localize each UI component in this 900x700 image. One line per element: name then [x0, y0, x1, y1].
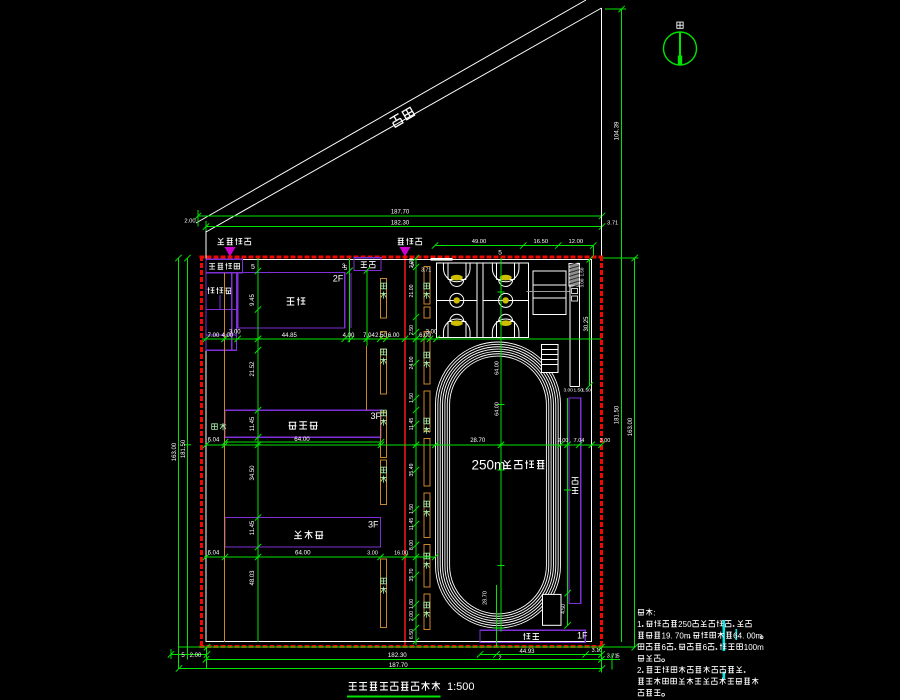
svg-text:4.00: 4.00 [343, 333, 355, 339]
svg-text:34.50: 34.50 [250, 465, 256, 481]
svg-text:49.00: 49.00 [472, 239, 487, 245]
svg-text:2.00: 2.00 [558, 438, 569, 444]
svg-text:64.00: 64.00 [294, 436, 310, 443]
svg-text:44.85: 44.85 [282, 333, 298, 339]
svg-text:187.70: 187.70 [391, 210, 410, 216]
svg-text:6.50: 6.50 [409, 629, 415, 639]
svg-text:187.70: 187.70 [389, 662, 408, 669]
svg-text:3.71: 3.71 [607, 221, 618, 227]
svg-text:7.00: 7.00 [208, 333, 220, 339]
svg-text:1.50: 1.50 [409, 393, 415, 403]
svg-text:6.04: 6.04 [208, 438, 220, 444]
svg-text:30.25: 30.25 [584, 316, 590, 332]
svg-text:9.45: 9.45 [250, 294, 256, 306]
svg-text:1:500: 1:500 [447, 681, 475, 693]
svg-text:.: . [670, 632, 672, 641]
svg-text:6: 6 [703, 643, 708, 652]
svg-text:2: 2 [498, 656, 501, 662]
svg-text:3.00: 3.00 [564, 388, 574, 394]
svg-text:8.00: 8.00 [409, 540, 415, 550]
svg-text:48.03: 48.03 [250, 570, 256, 586]
svg-text:16.00: 16.00 [394, 551, 408, 557]
svg-text:2.50: 2.50 [375, 333, 387, 339]
svg-text:.: . [742, 632, 744, 641]
svg-text:24.00: 24.00 [409, 356, 415, 369]
svg-text:44.93: 44.93 [519, 649, 535, 655]
svg-text:104.39: 104.39 [614, 121, 621, 140]
svg-text:2.00: 2.00 [184, 219, 195, 225]
svg-text:181.50: 181.50 [615, 405, 621, 424]
svg-text:7.04: 7.04 [363, 333, 375, 339]
svg-text:28.70: 28.70 [483, 591, 489, 605]
svg-text:5: 5 [498, 250, 502, 257]
svg-text:3F: 3F [368, 520, 379, 530]
svg-text:6: 6 [661, 643, 666, 652]
svg-text:1.50: 1.50 [580, 267, 585, 276]
svg-text:2.50: 2.50 [409, 325, 415, 335]
svg-text:3.00: 3.00 [600, 438, 611, 444]
svg-text:163.00: 163.00 [628, 417, 634, 436]
svg-text:0: 0 [687, 620, 692, 629]
svg-text:182.30: 182.30 [391, 221, 410, 227]
svg-text:6.04: 6.04 [208, 551, 220, 557]
svg-text:11.45: 11.45 [250, 520, 256, 535]
svg-text:1.50: 1.50 [409, 504, 415, 514]
svg-text:5: 5 [617, 653, 620, 659]
svg-text:2F: 2F [333, 274, 344, 284]
svg-text:3.00: 3.00 [367, 551, 378, 557]
svg-text:1.00: 1.00 [409, 599, 415, 609]
svg-text:4.50: 4.50 [561, 604, 567, 614]
svg-text:64.00: 64.00 [295, 550, 311, 557]
svg-text:28.70: 28.70 [470, 438, 486, 444]
svg-text:12.00: 12.00 [569, 239, 584, 245]
svg-text:3.71: 3.71 [421, 268, 431, 274]
svg-text:182.30: 182.30 [388, 652, 407, 659]
svg-text:35.49: 35.49 [409, 463, 415, 476]
svg-text:6.00: 6.00 [388, 333, 400, 339]
svg-text::: : [653, 609, 655, 618]
svg-text:1.50: 1.50 [582, 388, 592, 394]
svg-text:1F: 1F [577, 631, 588, 641]
svg-text:3.10: 3.10 [592, 648, 603, 654]
svg-text:21.52: 21.52 [250, 361, 256, 377]
svg-text:16.50: 16.50 [534, 239, 549, 245]
svg-text:5: 5 [251, 264, 255, 271]
svg-text:2.00: 2.00 [190, 653, 202, 659]
svg-text:m: m [684, 632, 691, 641]
svg-text:3.00: 3.00 [580, 278, 585, 287]
svg-text:3.00: 3.00 [229, 330, 241, 336]
svg-text:2.00: 2.00 [409, 611, 415, 621]
svg-text:21.00: 21.00 [409, 284, 415, 297]
svg-text:64.00: 64.00 [494, 402, 500, 416]
svg-text:11.45: 11.45 [409, 418, 415, 431]
svg-text:11.45: 11.45 [250, 416, 256, 431]
svg-text:1: 1 [637, 620, 642, 629]
svg-text:35.70: 35.70 [409, 568, 415, 581]
svg-text:2: 2 [637, 666, 642, 675]
svg-text:64.00: 64.00 [494, 361, 500, 375]
svg-text:7.04: 7.04 [574, 438, 585, 444]
svg-text:181.50: 181.50 [181, 439, 187, 458]
svg-text:3.00: 3.00 [426, 330, 438, 336]
svg-text:m: m [757, 643, 764, 652]
svg-text:163.00: 163.00 [172, 442, 178, 461]
svg-text:11.45: 11.45 [409, 518, 415, 531]
